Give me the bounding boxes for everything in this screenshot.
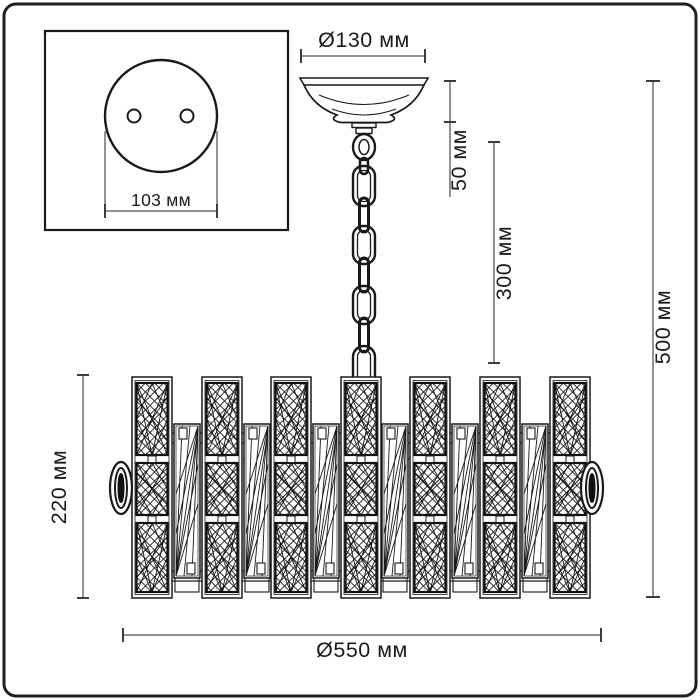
body-diameter-label: Ø550 мм [316, 638, 408, 662]
mount-plate-width-label: 103 мм [131, 190, 191, 210]
body-height-label: 220 мм [47, 450, 71, 524]
crystal-panel-short [522, 424, 548, 578]
crystal-panel-tall [410, 377, 450, 598]
crystal-panel-tall [271, 377, 311, 598]
crystal-panel-short [313, 424, 339, 578]
canopy-diameter-label: Ø130 мм [318, 28, 410, 52]
crystal-panel-tall [341, 377, 381, 598]
crystal-panel-tall [480, 377, 520, 598]
side-finial-right [581, 462, 603, 514]
canopy-height-label: 50 мм [447, 129, 471, 191]
drawing-canvas: 103 мм Ø130 мм 50 мм 300 мм 500 мм [0, 0, 700, 700]
chain-length-label: 300 мм [492, 226, 516, 300]
crystal-panel-tall [132, 377, 172, 598]
crystal-panel-tall [202, 377, 242, 598]
mount-plate-inset: 103 мм [45, 31, 288, 230]
crystal-panel-short [244, 424, 270, 578]
crystal-panel-short [382, 424, 408, 578]
crystal-panel-short [174, 424, 200, 578]
chandelier-dimension-diagram: 103 мм Ø130 мм 50 мм 300 мм 500 мм [0, 0, 700, 700]
side-finial-left [110, 462, 132, 514]
crystal-panel-short [452, 424, 478, 578]
total-height-label: 500 мм [651, 290, 675, 364]
